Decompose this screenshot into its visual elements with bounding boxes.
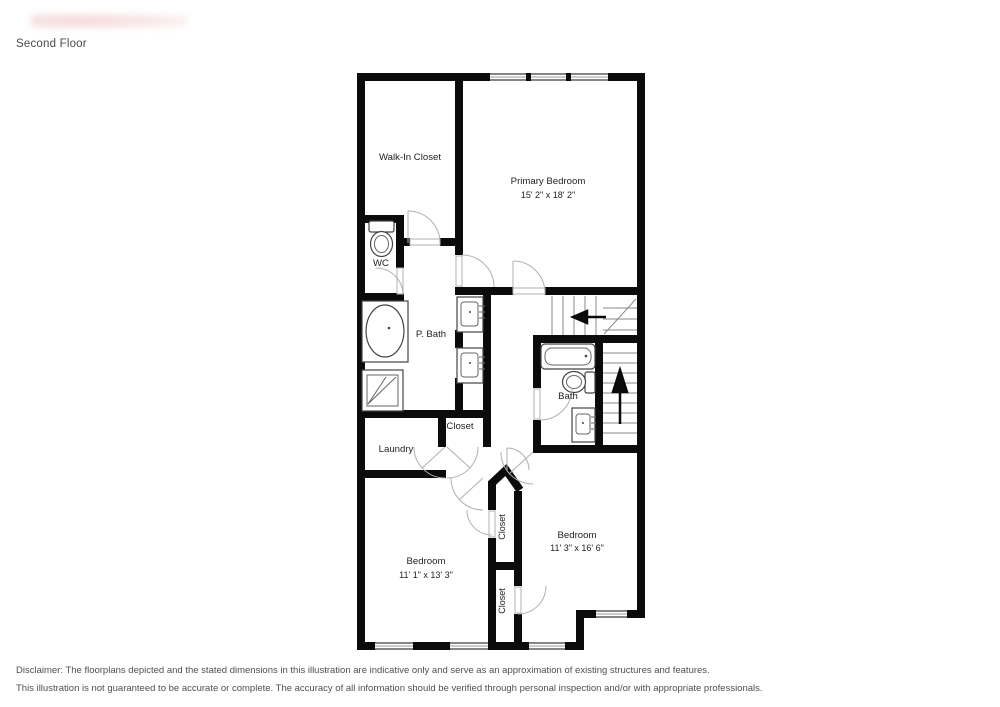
label-bath: Bath — [558, 391, 578, 402]
door-leaf-bath — [534, 389, 540, 419]
disclaimer-line-2: This illustration is not guaranteed to b… — [16, 680, 763, 698]
wall-bedroom2-north — [533, 445, 645, 453]
door-arc-wic — [408, 211, 440, 243]
door-arc-hall-peak — [507, 448, 529, 470]
window-primary-top — [490, 73, 608, 81]
wall-closet-divider — [488, 562, 522, 570]
toilet-wc-icon — [369, 221, 394, 257]
label-p-bath: P. Bath — [416, 329, 446, 340]
wall-bath-north — [533, 335, 645, 343]
wall-closet-col-left-lower — [488, 538, 496, 650]
door-leaf-wic — [410, 239, 440, 245]
window-bedroom2-notch — [596, 610, 627, 618]
wall-primary-south-east — [545, 287, 645, 295]
label-laundry: Laundry — [379, 444, 414, 455]
wall-primary-south-west — [455, 287, 513, 295]
wall-hall-closet-west — [438, 410, 446, 447]
wall-wic-bottom-east — [440, 238, 463, 246]
label-wc: WC — [373, 258, 389, 269]
window-bedroom1-right — [450, 642, 488, 650]
wall-bath-east — [595, 335, 603, 453]
door-arc-closet-upper — [467, 510, 492, 535]
dim-primary-bedroom: 15' 2" x 18' 2" — [521, 190, 575, 200]
bathtub-bath-icon — [541, 344, 595, 369]
stair-left-arrow-icon — [573, 311, 606, 323]
door-arc-closet-lower — [518, 586, 546, 614]
wall-closet-col-right-upper — [514, 491, 522, 586]
stair-landing — [603, 299, 637, 334]
wall-wic-bedroom-divider — [455, 73, 463, 255]
door-leaf-primary — [513, 288, 545, 294]
window-bedroom1-left — [375, 642, 413, 650]
bathtub-pbath-icon — [362, 301, 408, 362]
wall-vanity-stub-1 — [455, 330, 463, 348]
label-bedroom-left: Bedroom — [407, 556, 446, 567]
wall-notch-vertical — [576, 610, 584, 650]
label-primary-bedroom: Primary Bedroom — [511, 176, 586, 187]
wall-wic-bottom-west — [403, 238, 410, 246]
wall-closet-col-right-lower — [514, 614, 522, 650]
door-leaf-closet-upper — [489, 511, 495, 537]
wall-bath-west-upper — [533, 335, 541, 388]
label-walk-in-closet: Walk-In Closet — [379, 152, 441, 163]
vanity-bath-icon — [572, 408, 596, 442]
label-bedroom-right: Bedroom — [558, 530, 597, 541]
disclaimer: Disclaimer: The floorplans depicted and … — [16, 662, 763, 698]
toilet-bath-icon — [563, 372, 596, 394]
wall-wc-right — [396, 215, 404, 268]
label-closet-upper: Closet — [497, 514, 507, 540]
door-leaf-hall-primary — [456, 256, 462, 286]
shower-pbath-icon — [362, 370, 403, 411]
door-leaf-closet-lower — [515, 587, 521, 613]
label-closet-lower: Closet — [497, 588, 507, 614]
wall-exterior-right — [637, 73, 645, 618]
floorplan-drawing: Walk-In Closet Primary Bedroom 15' 2" x … — [0, 0, 1000, 707]
label-hall-closet: Closet — [446, 421, 474, 432]
window-bedroom2-bottom — [529, 642, 565, 650]
floorplan-page: Second Floor — [0, 0, 1000, 707]
door-arc-hall-primary — [462, 255, 494, 287]
stair-up-arrow-icon — [613, 370, 627, 424]
dim-bedroom-right: 11' 3" x 16' 6" — [550, 543, 604, 553]
dim-bedroom-left: 11' 1" x 13' 3" — [399, 570, 453, 580]
disclaimer-line-1: Disclaimer: The floorplans depicted and … — [16, 662, 763, 680]
wall-laundry-south — [357, 470, 446, 478]
